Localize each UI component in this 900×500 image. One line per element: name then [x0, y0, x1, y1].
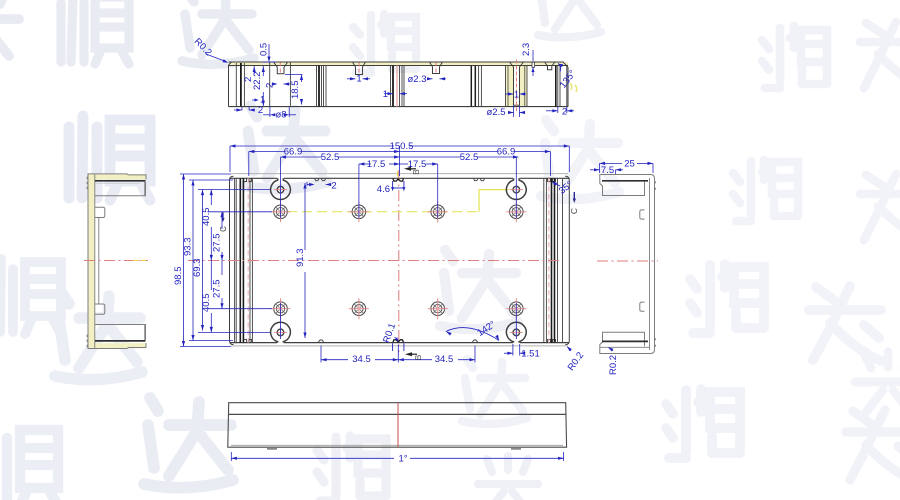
- svg-text:22.2: 22.2: [252, 72, 263, 91]
- svg-text:1: 1: [260, 95, 265, 105]
- svg-text:R0.1: R0.1: [381, 322, 398, 345]
- svg-text:40.5: 40.5: [201, 208, 212, 227]
- svg-text:27.5: 27.5: [212, 280, 223, 299]
- svg-text:1°: 1°: [398, 454, 407, 465]
- svg-text:7.5: 7.5: [601, 165, 614, 176]
- svg-text:93.3: 93.3: [183, 238, 194, 257]
- svg-text:R0.2: R0.2: [566, 350, 587, 373]
- svg-text:2: 2: [258, 105, 263, 116]
- svg-text:1.51: 1.51: [521, 348, 540, 359]
- svg-text:ø2.3: ø2.3: [407, 74, 426, 85]
- svg-text:2: 2: [331, 181, 336, 192]
- svg-text:69.3: 69.3: [192, 259, 203, 278]
- svg-text:1: 1: [514, 90, 519, 101]
- svg-text:34.5: 34.5: [435, 354, 454, 365]
- svg-text:25: 25: [624, 159, 635, 170]
- svg-text:18.5: 18.5: [290, 81, 301, 100]
- svg-text:40.5: 40.5: [201, 294, 212, 313]
- svg-text:1: 1: [383, 89, 388, 100]
- svg-text:52.5: 52.5: [460, 152, 479, 163]
- svg-text:2.3: 2.3: [521, 43, 532, 56]
- svg-text:66.9: 66.9: [497, 147, 516, 158]
- svg-text:66.9: 66.9: [284, 147, 303, 158]
- svg-text:1: 1: [356, 74, 361, 85]
- svg-text:91.3: 91.3: [295, 249, 306, 268]
- svg-text:150.5: 150.5: [390, 141, 414, 152]
- svg-text:2: 2: [562, 107, 567, 118]
- svg-text:98.5: 98.5: [173, 267, 184, 286]
- svg-text:ø2.5: ø2.5: [486, 107, 505, 118]
- svg-text:17.5: 17.5: [367, 159, 386, 170]
- svg-text:52.5: 52.5: [321, 152, 340, 163]
- svg-text:142°: 142°: [475, 319, 498, 339]
- svg-text:C: C: [219, 226, 228, 232]
- svg-text:4.6: 4.6: [377, 184, 390, 195]
- svg-text:B: B: [413, 354, 423, 360]
- svg-text:0.5: 0.5: [259, 43, 270, 56]
- svg-text:34.5: 34.5: [352, 354, 371, 365]
- svg-text:R0.2: R0.2: [608, 355, 619, 375]
- svg-text:135°: 135°: [558, 68, 579, 90]
- svg-text:27.5: 27.5: [212, 234, 223, 253]
- svg-text:C: C: [569, 208, 579, 214]
- svg-text:B: B: [411, 169, 421, 175]
